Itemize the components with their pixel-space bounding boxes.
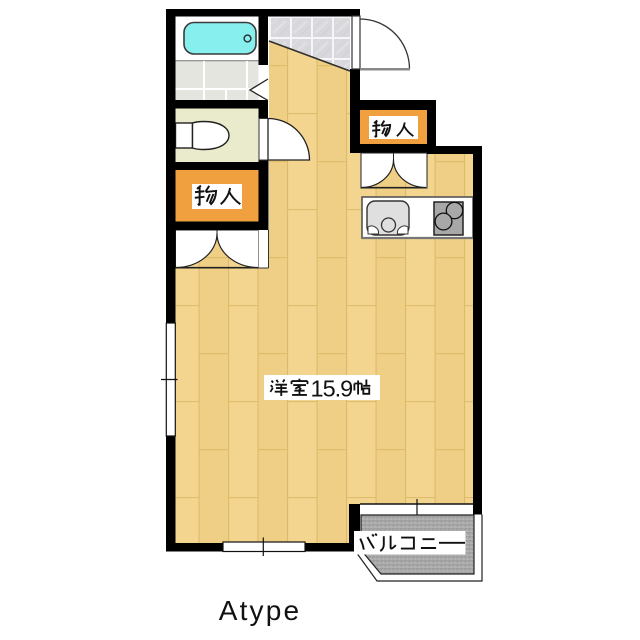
svg-text:Atype: Atype — [219, 595, 302, 626]
svg-text:15.9: 15.9 — [311, 376, 353, 402]
